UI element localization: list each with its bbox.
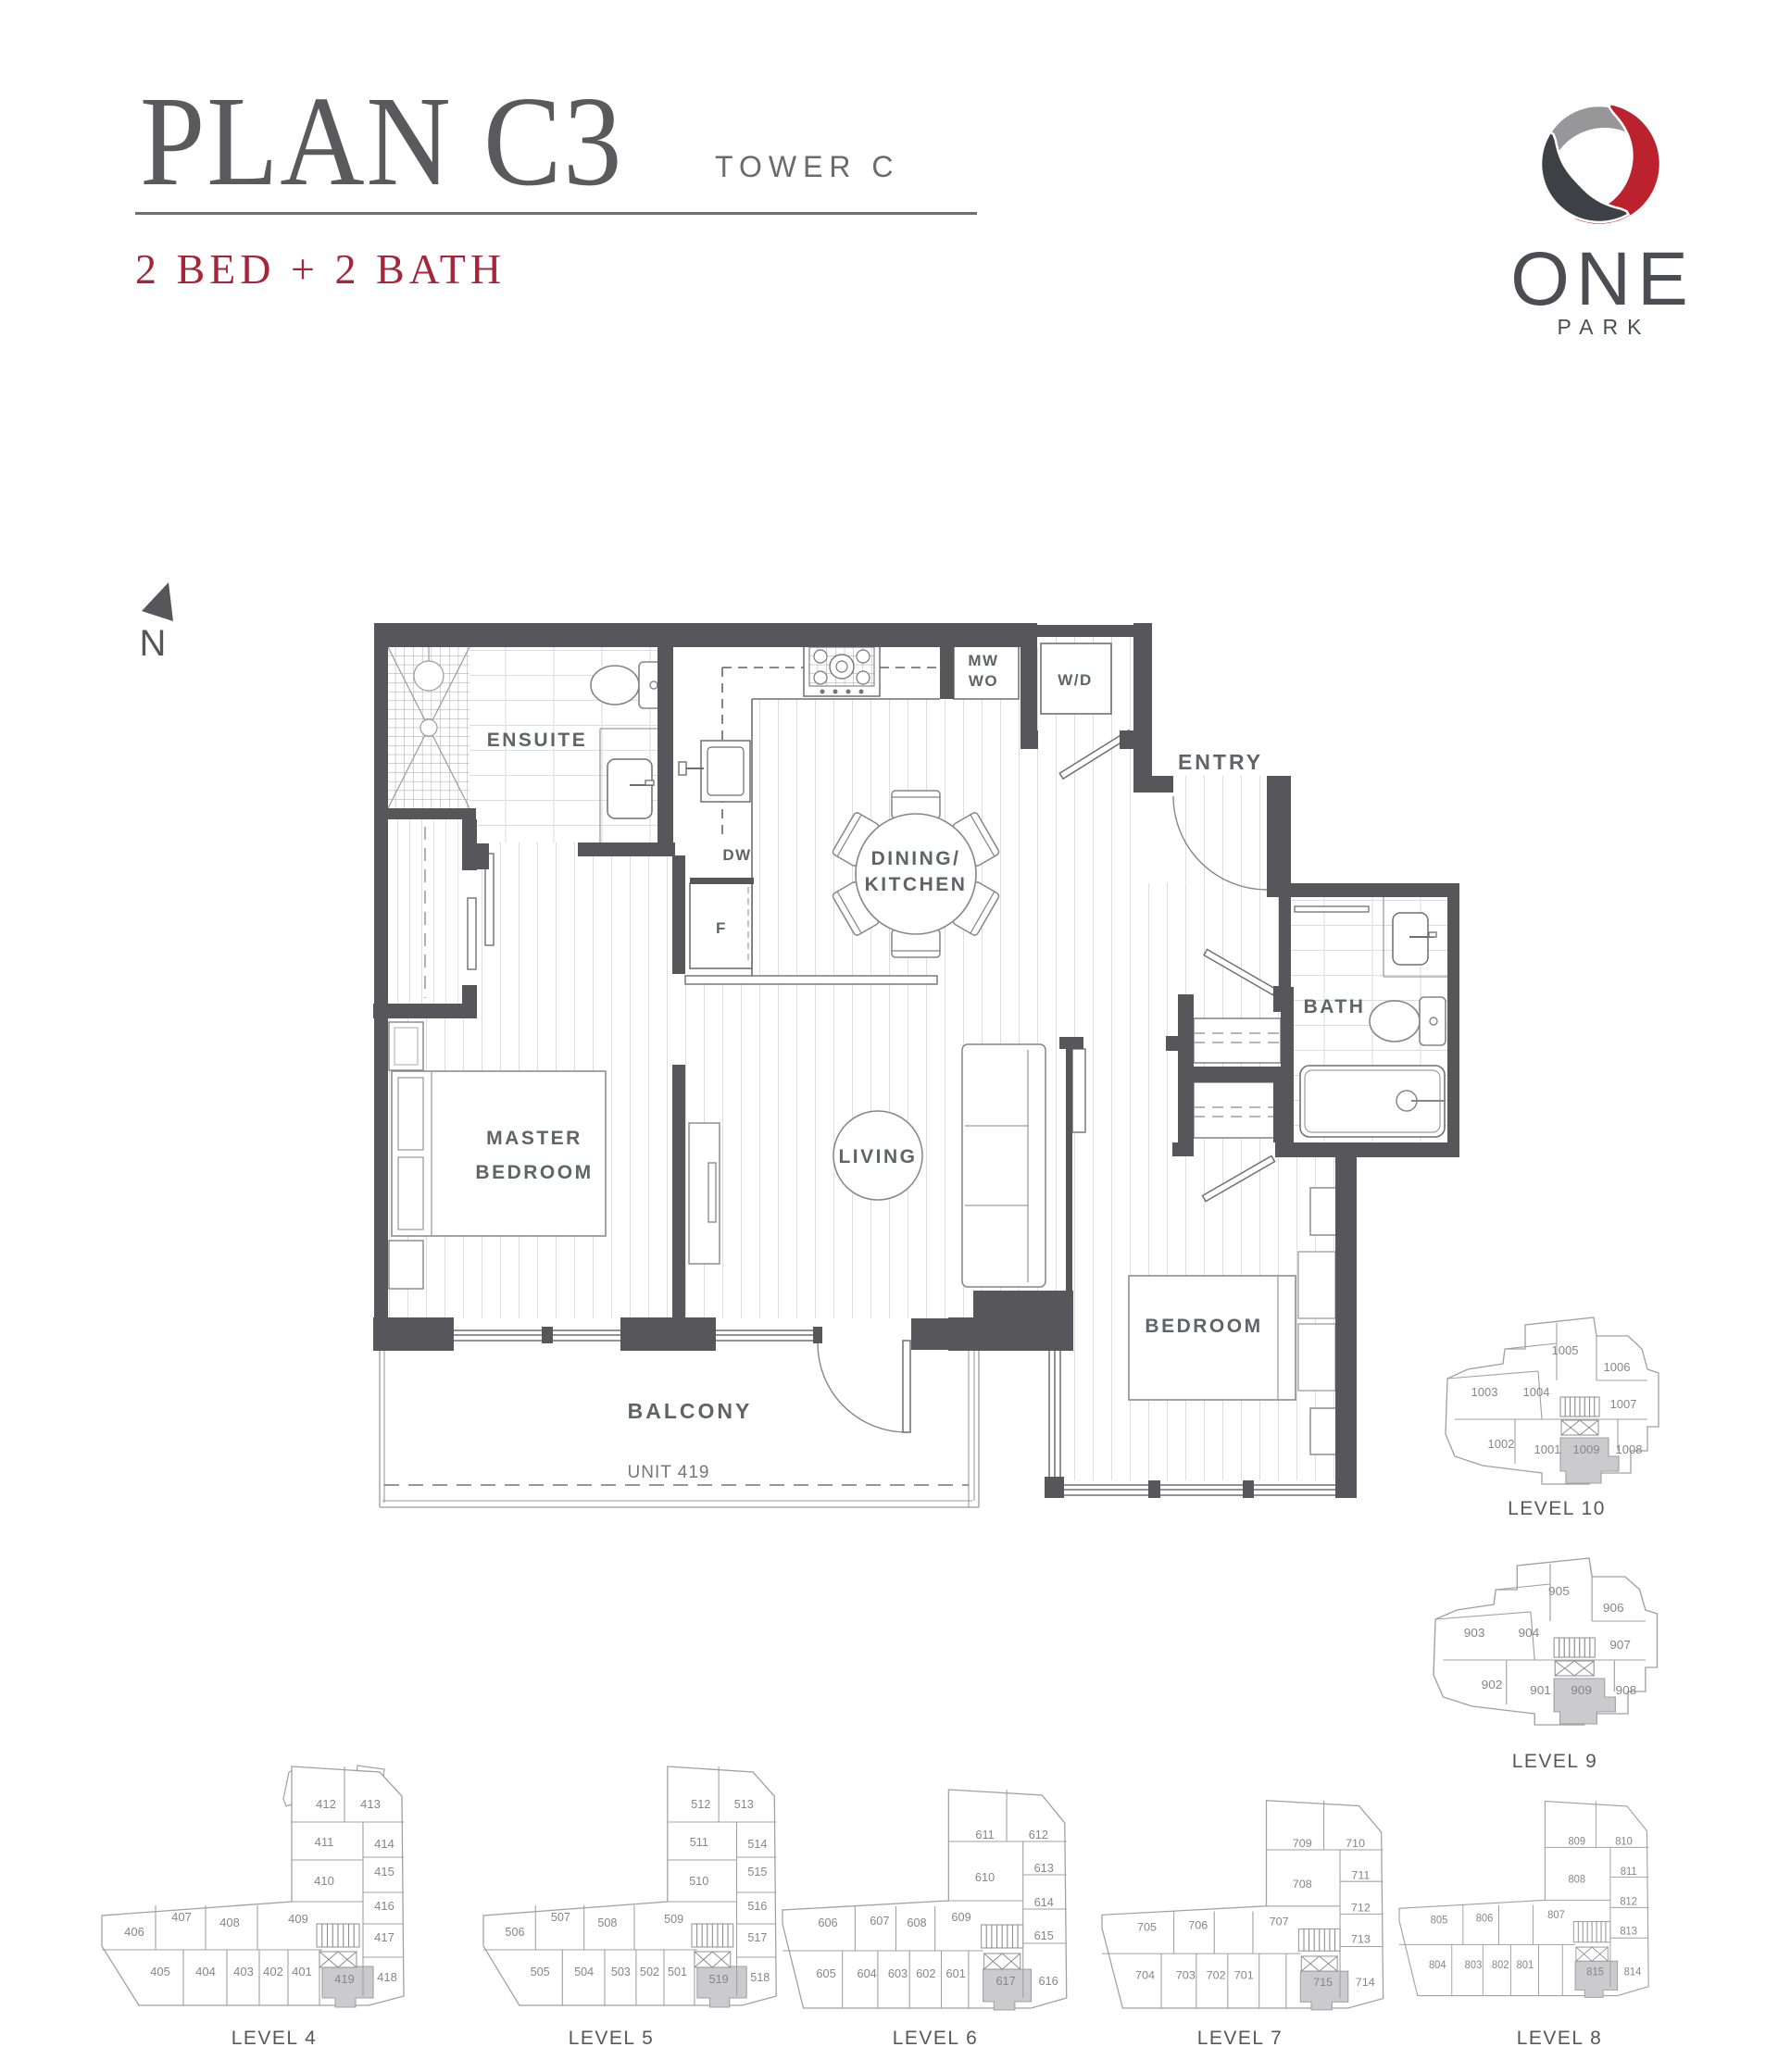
svg-text:507: 507 — [551, 1910, 570, 1924]
svg-text:1001: 1001 — [1534, 1442, 1561, 1456]
svg-text:BEDROOM: BEDROOM — [475, 1162, 593, 1183]
svg-text:KITCHEN: KITCHEN — [865, 874, 968, 895]
svg-text:413: 413 — [360, 1797, 381, 1811]
svg-text:711: 711 — [1351, 1868, 1370, 1881]
svg-text:706: 706 — [1188, 1919, 1208, 1932]
svg-text:1003: 1003 — [1471, 1385, 1498, 1399]
svg-text:517: 517 — [747, 1930, 767, 1944]
svg-text:MW: MW — [968, 652, 998, 669]
svg-text:909: 909 — [1571, 1683, 1592, 1697]
svg-text:1006: 1006 — [1604, 1360, 1631, 1374]
svg-text:613: 613 — [1034, 1861, 1054, 1875]
svg-text:1008: 1008 — [1616, 1442, 1643, 1456]
svg-text:409: 409 — [288, 1912, 308, 1926]
svg-text:410: 410 — [314, 1874, 334, 1888]
svg-text:1005: 1005 — [1552, 1343, 1579, 1357]
svg-text:512: 512 — [691, 1797, 710, 1811]
svg-text:514: 514 — [747, 1837, 767, 1851]
svg-text:LIVING: LIVING — [838, 1146, 917, 1167]
svg-text:606: 606 — [818, 1916, 837, 1929]
svg-text:908: 908 — [1616, 1683, 1637, 1697]
svg-text:DW: DW — [722, 846, 751, 864]
svg-text:904: 904 — [1519, 1626, 1540, 1640]
svg-text:415: 415 — [374, 1865, 394, 1879]
svg-text:414: 414 — [374, 1837, 394, 1851]
svg-text:408: 408 — [219, 1916, 240, 1929]
svg-text:F: F — [716, 919, 727, 937]
svg-text:615: 615 — [1034, 1928, 1054, 1942]
svg-text:905: 905 — [1548, 1584, 1570, 1598]
svg-text:617: 617 — [995, 1974, 1015, 1988]
svg-text:402: 402 — [263, 1965, 283, 1978]
svg-text:903: 903 — [1464, 1626, 1485, 1640]
svg-text:616: 616 — [1039, 1974, 1058, 1988]
svg-text:708: 708 — [1293, 1878, 1312, 1891]
svg-text:WO: WO — [969, 672, 998, 690]
svg-text:412: 412 — [316, 1797, 336, 1811]
svg-text:503: 503 — [611, 1965, 631, 1978]
svg-text:502: 502 — [640, 1965, 659, 1978]
svg-text:901: 901 — [1530, 1683, 1551, 1697]
svg-text:UNIT 419: UNIT 419 — [628, 1463, 710, 1482]
svg-text:601: 601 — [946, 1966, 966, 1980]
svg-text:504: 504 — [574, 1965, 594, 1978]
svg-text:811: 811 — [1621, 1866, 1637, 1878]
svg-text:LEVEL 9: LEVEL 9 — [1512, 1751, 1598, 1772]
svg-text:406: 406 — [124, 1925, 144, 1939]
svg-text:809: 809 — [1568, 1837, 1585, 1848]
svg-text:411: 411 — [315, 1835, 334, 1849]
svg-text:702: 702 — [1207, 1969, 1226, 1982]
svg-text:404: 404 — [195, 1965, 216, 1978]
svg-text:BALCONY: BALCONY — [628, 1399, 753, 1423]
svg-text:510: 510 — [689, 1874, 708, 1888]
svg-text:807: 807 — [1547, 1910, 1565, 1921]
svg-text:803: 803 — [1465, 1960, 1483, 1971]
svg-text:518: 518 — [750, 1970, 770, 1984]
svg-text:906: 906 — [1603, 1601, 1624, 1615]
svg-text:1004: 1004 — [1523, 1385, 1550, 1399]
svg-text:509: 509 — [664, 1912, 683, 1926]
svg-text:ENSUITE: ENSUITE — [487, 730, 588, 751]
svg-text:701: 701 — [1234, 1969, 1254, 1982]
svg-text:LEVEL 10: LEVEL 10 — [1508, 1498, 1606, 1519]
svg-text:608: 608 — [907, 1916, 926, 1929]
svg-text:810: 810 — [1615, 1837, 1633, 1848]
svg-text:417: 417 — [374, 1930, 394, 1944]
svg-text:1002: 1002 — [1488, 1437, 1515, 1451]
svg-text:505: 505 — [531, 1965, 550, 1978]
svg-text:BEDROOM: BEDROOM — [1145, 1316, 1262, 1337]
svg-text:805: 805 — [1431, 1915, 1448, 1926]
svg-text:612: 612 — [1029, 1828, 1048, 1841]
svg-text:614: 614 — [1034, 1895, 1054, 1909]
svg-text:508: 508 — [597, 1916, 617, 1929]
svg-text:511: 511 — [690, 1835, 708, 1849]
svg-text:715: 715 — [1313, 1976, 1333, 1989]
svg-text:815: 815 — [1586, 1966, 1604, 1978]
svg-text:LEVEL 8: LEVEL 8 — [1517, 2028, 1603, 2049]
svg-text:419: 419 — [334, 1972, 355, 1986]
svg-text:607: 607 — [870, 1914, 889, 1928]
svg-text:519: 519 — [709, 1972, 729, 1986]
svg-text:1009: 1009 — [1573, 1442, 1600, 1456]
svg-text:1007: 1007 — [1610, 1397, 1637, 1411]
svg-text:407: 407 — [171, 1910, 192, 1924]
svg-text:LEVEL 7: LEVEL 7 — [1197, 2028, 1283, 2049]
svg-text:806: 806 — [1476, 1913, 1494, 1924]
svg-text:707: 707 — [1270, 1916, 1289, 1928]
svg-text:416: 416 — [374, 1899, 394, 1913]
svg-text:902: 902 — [1482, 1678, 1503, 1691]
svg-text:LEVEL 5: LEVEL 5 — [569, 2028, 655, 2049]
svg-text:418: 418 — [377, 1970, 397, 1984]
svg-text:704: 704 — [1135, 1969, 1155, 1982]
svg-text:516: 516 — [747, 1899, 767, 1913]
svg-text:813: 813 — [1620, 1927, 1637, 1938]
svg-text:804: 804 — [1429, 1960, 1446, 1971]
svg-text:401: 401 — [292, 1965, 312, 1978]
svg-text:602: 602 — [916, 1966, 935, 1980]
svg-text:714: 714 — [1356, 1976, 1375, 1989]
svg-text:709: 709 — [1293, 1837, 1312, 1850]
svg-text:604: 604 — [858, 1966, 877, 1980]
svg-text:801: 801 — [1517, 1960, 1534, 1971]
svg-text:802: 802 — [1492, 1960, 1509, 1971]
svg-text:DINING/: DINING/ — [871, 848, 961, 869]
svg-text:LEVEL 4: LEVEL 4 — [232, 2028, 318, 2049]
svg-text:603: 603 — [888, 1966, 908, 1980]
svg-text:501: 501 — [668, 1965, 687, 1978]
svg-text:BATH: BATH — [1304, 996, 1366, 1017]
svg-text:710: 710 — [1346, 1837, 1365, 1850]
svg-text:713: 713 — [1351, 1933, 1371, 1946]
svg-text:405: 405 — [150, 1965, 170, 1978]
svg-text:611: 611 — [975, 1828, 994, 1841]
svg-text:610: 610 — [975, 1870, 995, 1884]
svg-text:705: 705 — [1137, 1921, 1157, 1934]
svg-text:403: 403 — [233, 1965, 254, 1978]
svg-text:LEVEL 6: LEVEL 6 — [893, 2028, 979, 2049]
svg-text:703: 703 — [1176, 1969, 1196, 1982]
svg-text:812: 812 — [1620, 1897, 1637, 1908]
svg-text:609: 609 — [951, 1910, 970, 1924]
svg-text:814: 814 — [1624, 1966, 1642, 1978]
svg-text:808: 808 — [1568, 1875, 1585, 1886]
svg-text:515: 515 — [747, 1865, 767, 1879]
svg-text:W/D: W/D — [1058, 671, 1093, 689]
svg-text:MASTER: MASTER — [486, 1128, 582, 1149]
svg-text:506: 506 — [505, 1925, 524, 1939]
svg-text:712: 712 — [1351, 1902, 1371, 1915]
svg-text:605: 605 — [816, 1966, 835, 1980]
svg-text:ENTRY: ENTRY — [1178, 750, 1263, 774]
svg-text:907: 907 — [1609, 1638, 1631, 1652]
svg-text:N: N — [140, 623, 167, 664]
svg-text:513: 513 — [734, 1797, 754, 1811]
